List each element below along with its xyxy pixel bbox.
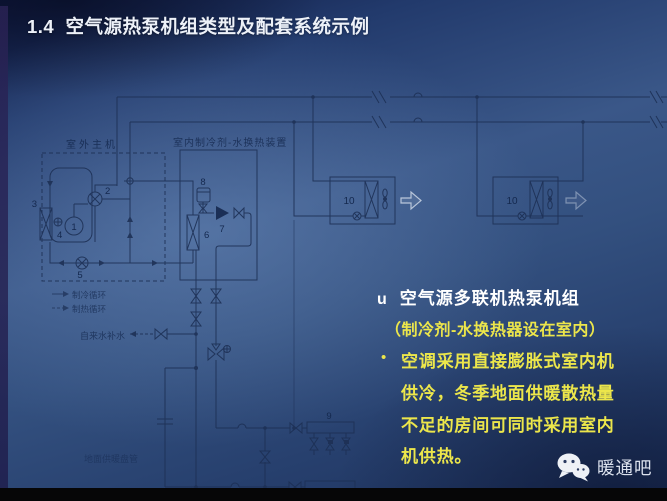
label-throttle: 5 [77, 270, 82, 281]
flow-arrows [47, 181, 158, 266]
pipe-hop-icon [238, 424, 246, 428]
label-expansion-tank: 8 [200, 177, 205, 188]
paragraph-line: 不足的房间可同时采用室内 [401, 410, 659, 442]
paragraph-line: 供冷，冬季地面供暖散热量 [401, 378, 659, 410]
paragraph-line: 空调采用直接膨胀式室内机 [401, 346, 659, 378]
label-outdoor-fan: 4 [57, 230, 62, 241]
label-four-way-valve: 2 [105, 186, 110, 197]
hydro-module [180, 150, 257, 280]
indoor-coil-icon [365, 181, 378, 218]
watermark-label: 暖通吧 [597, 455, 653, 480]
tap-water-line [130, 329, 196, 339]
diagram-legend [52, 291, 69, 311]
indoor-fan-icon [383, 189, 387, 209]
bullet-icon: • [381, 349, 386, 366]
indoor-fan-icon [548, 189, 552, 209]
label-indoor-unit-2: 10 [506, 196, 518, 207]
floor-coil-label: 地面供暖盘管 [84, 453, 138, 464]
expansion-valve-icon [353, 212, 365, 220]
label-compressor: 1 [71, 222, 76, 233]
tap-water-label: 自来水补水 [80, 330, 125, 341]
section-subheading: （制冷剂-水换热器设在室内） [385, 316, 605, 340]
label-outdoor-hx: 3 [32, 199, 37, 210]
label-manifold: 9 [326, 411, 331, 422]
airflow-arrow-icon [401, 192, 421, 209]
outdoor-fan-icon [54, 218, 62, 226]
wechat-icon [556, 452, 590, 482]
legend-cooling-label: 制冷循环 [72, 290, 107, 300]
indoor-unit-1 [330, 177, 395, 224]
outdoor-unit-label: 室外主机 [66, 138, 118, 151]
three-way-valve-icon [208, 344, 231, 360]
slide: 1.4 空气源热泵机组类型及配套系统示例 [0, 0, 667, 501]
footer-bar [0, 488, 667, 501]
supply-manifold [307, 422, 354, 433]
watermark: 暖通吧 [556, 452, 653, 482]
expansion-valve-icon [518, 212, 530, 220]
airflow-arrow-icon [566, 192, 586, 209]
label-indoor-unit-1: 10 [343, 196, 355, 207]
pipe-hop-icon [231, 483, 239, 487]
legend-heating-label: 制热循环 [72, 304, 107, 314]
plate-hx-icon [187, 215, 199, 250]
section-heading-row: u空气源多联机热泵机组 [377, 284, 580, 309]
indoor-coil-icon [530, 181, 543, 218]
label-pump: 7 [219, 224, 224, 235]
four-way-valve-icon [88, 192, 102, 206]
label-plate-hx: 6 [204, 230, 209, 241]
indoor-unit-2 [493, 177, 558, 224]
expansion-tank-icon [197, 188, 210, 213]
hydro-module-label: 室内制冷剂-水换热装置 [173, 136, 287, 149]
section-heading: 空气源多联机热泵机组 [400, 289, 580, 308]
water-distribution [130, 280, 355, 492]
heading-marker: u [377, 291, 387, 308]
pump-icon [216, 206, 229, 220]
